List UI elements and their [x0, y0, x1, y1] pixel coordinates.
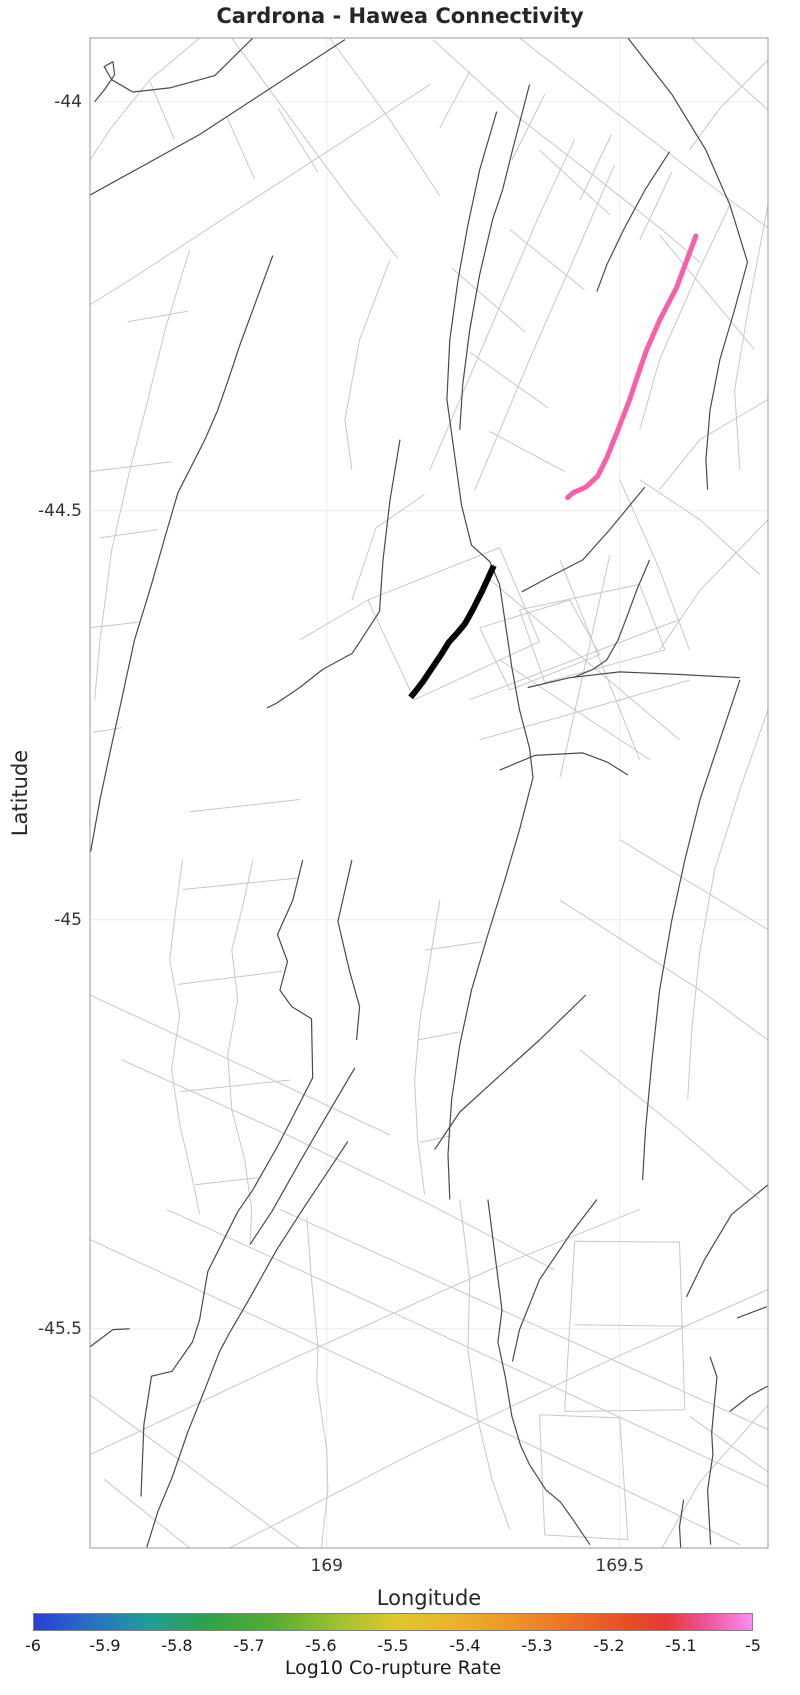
- x-tick-label: 169.5: [595, 1556, 644, 1576]
- fault-trace-dark: [447, 112, 533, 778]
- x-tick-label: 169: [311, 1556, 343, 1576]
- fault-trace-light: [425, 942, 482, 950]
- colorbar-label: Log10 Co-rupture Rate: [285, 1657, 501, 1679]
- fault-trace-light: [90, 622, 140, 628]
- fault-trace-light: [575, 1325, 685, 1327]
- fault-trace-light: [232, 38, 398, 258]
- fault-trace-dark: [435, 995, 586, 1150]
- colorbar-tick-label: -5.3: [521, 1636, 552, 1655]
- fault-trace-light: [433, 40, 700, 263]
- fault-trace-light: [230, 1290, 769, 1549]
- fault-trace-light: [620, 840, 768, 930]
- fault-trace-light: [104, 1479, 190, 1548]
- fault-trace-dark: [597, 152, 670, 292]
- fault-trace-dark: [528, 672, 740, 688]
- fault-trace-dark: [90, 40, 345, 196]
- background-faults-dark: [90, 38, 768, 1548]
- fault-trace-dark: [513, 1200, 597, 1362]
- fault-trace-light: [490, 432, 565, 472]
- fault-trace-light: [330, 38, 440, 196]
- fault-trace-light: [170, 860, 200, 1214]
- fault-trace-light: [452, 268, 525, 332]
- fault-trace-dark: [522, 487, 645, 592]
- plot-border: [90, 38, 768, 1548]
- fault-trace-light: [90, 85, 430, 305]
- fault-trace-dark: [91, 256, 273, 852]
- fault-trace-light: [178, 971, 282, 984]
- fault-trace-dark: [680, 1500, 684, 1548]
- fault-trace-light: [470, 352, 548, 408]
- fault-trace-light: [692, 38, 768, 110]
- fault-trace-light: [520, 38, 769, 228]
- fault-trace-light: [662, 1405, 768, 1548]
- fault-trace-dark: [643, 680, 740, 1180]
- fault-trace-light: [90, 1209, 640, 1454]
- fault-trace-light: [180, 1080, 290, 1092]
- fault-trace-dark: [737, 1307, 767, 1318]
- fault-trace-dark: [90, 1329, 130, 1347]
- fault-trace-dark: [687, 1185, 769, 1297]
- colorbar-tick-label: -5.2: [593, 1636, 624, 1655]
- fault-trace-light: [190, 800, 300, 812]
- fault-trace-light: [580, 135, 612, 201]
- background-faults-light: [90, 38, 768, 1548]
- fault-trace-dark: [488, 1200, 590, 1545]
- fault-trace-light: [90, 1240, 740, 1545]
- fault-trace-light: [128, 311, 188, 322]
- fault-trace-light: [640, 480, 760, 575]
- fault-trace-light: [90, 462, 172, 472]
- fault-trace-dark: [708, 1357, 717, 1545]
- fault-trace-light: [100, 530, 158, 538]
- fault-trace-light: [580, 1050, 760, 1200]
- fault-trace-light: [420, 1136, 452, 1143]
- x-axis-label: Longitude: [377, 1586, 481, 1610]
- fault-trace-light: [195, 1178, 260, 1185]
- map-plot-canvas: [0, 0, 800, 1695]
- fault-trace-light: [415, 900, 440, 1194]
- fault-trace-light: [735, 205, 768, 470]
- colorbar-tick-label: -5.8: [161, 1636, 192, 1655]
- colorbar-tick-label: -5: [745, 1636, 761, 1655]
- colorbar-tick-label: -5.4: [449, 1636, 480, 1655]
- fault-trace-light: [278, 108, 318, 172]
- y-tick-label: -44.5: [38, 501, 82, 521]
- y-tick-label: -45: [54, 910, 82, 930]
- fault-trace-dark: [267, 440, 400, 708]
- fault-trace-dark: [706, 262, 748, 489]
- fault-trace-light: [475, 165, 615, 490]
- fault-trace-light: [228, 860, 253, 1244]
- colorbar-tick-label: -5.9: [89, 1636, 120, 1655]
- fault-trace-light: [418, 1032, 460, 1040]
- gridlines: [90, 38, 768, 1548]
- y-axis-label: Latitude: [8, 750, 32, 836]
- fault-trace-light: [95, 250, 190, 700]
- fault-trace-dark: [448, 778, 533, 1200]
- fault-trace-light: [227, 117, 255, 179]
- fault-trace-light: [345, 260, 390, 470]
- hawea-target-fault-line: [568, 236, 696, 498]
- fault-trace-light: [183, 878, 298, 889]
- y-tick-label: -44: [54, 92, 82, 112]
- colorbar-tick-label: -6: [25, 1636, 41, 1655]
- fault-trace-dark: [730, 1386, 768, 1411]
- fault-trace-dark: [141, 860, 313, 1496]
- y-tick-label: -45.5: [38, 1319, 82, 1339]
- fault-trace-light: [93, 728, 122, 733]
- fault-trace-dark: [628, 38, 748, 262]
- fault-trace-light: [90, 995, 390, 1135]
- fault-trace-dark: [95, 38, 253, 102]
- fault-trace-dark: [338, 860, 360, 1040]
- fault-trace-light: [660, 400, 768, 490]
- colorbar-tick-label: -5.1: [665, 1636, 696, 1655]
- fault-trace-light: [640, 172, 672, 240]
- colorbar-tick-label: -5.5: [377, 1636, 408, 1655]
- fault-trace-light: [700, 205, 730, 268]
- colorbar-gradient: [33, 1613, 753, 1631]
- fault-trace-dark: [500, 753, 628, 775]
- colorbar-tick-label: -5.7: [233, 1636, 264, 1655]
- fault-trace-light: [90, 1395, 300, 1548]
- fault-trace-light: [440, 72, 470, 129]
- fault-trace-light: [90, 38, 200, 160]
- fault-trace-light: [167, 1209, 768, 1486]
- fault-trace-dark: [460, 85, 530, 430]
- fault-trace-light: [560, 900, 768, 1040]
- fault-trace-light: [660, 520, 768, 650]
- fault-trace-light: [540, 1415, 628, 1540]
- colorbar-tick-label: -5.6: [305, 1636, 336, 1655]
- fault-trace-light: [300, 600, 368, 640]
